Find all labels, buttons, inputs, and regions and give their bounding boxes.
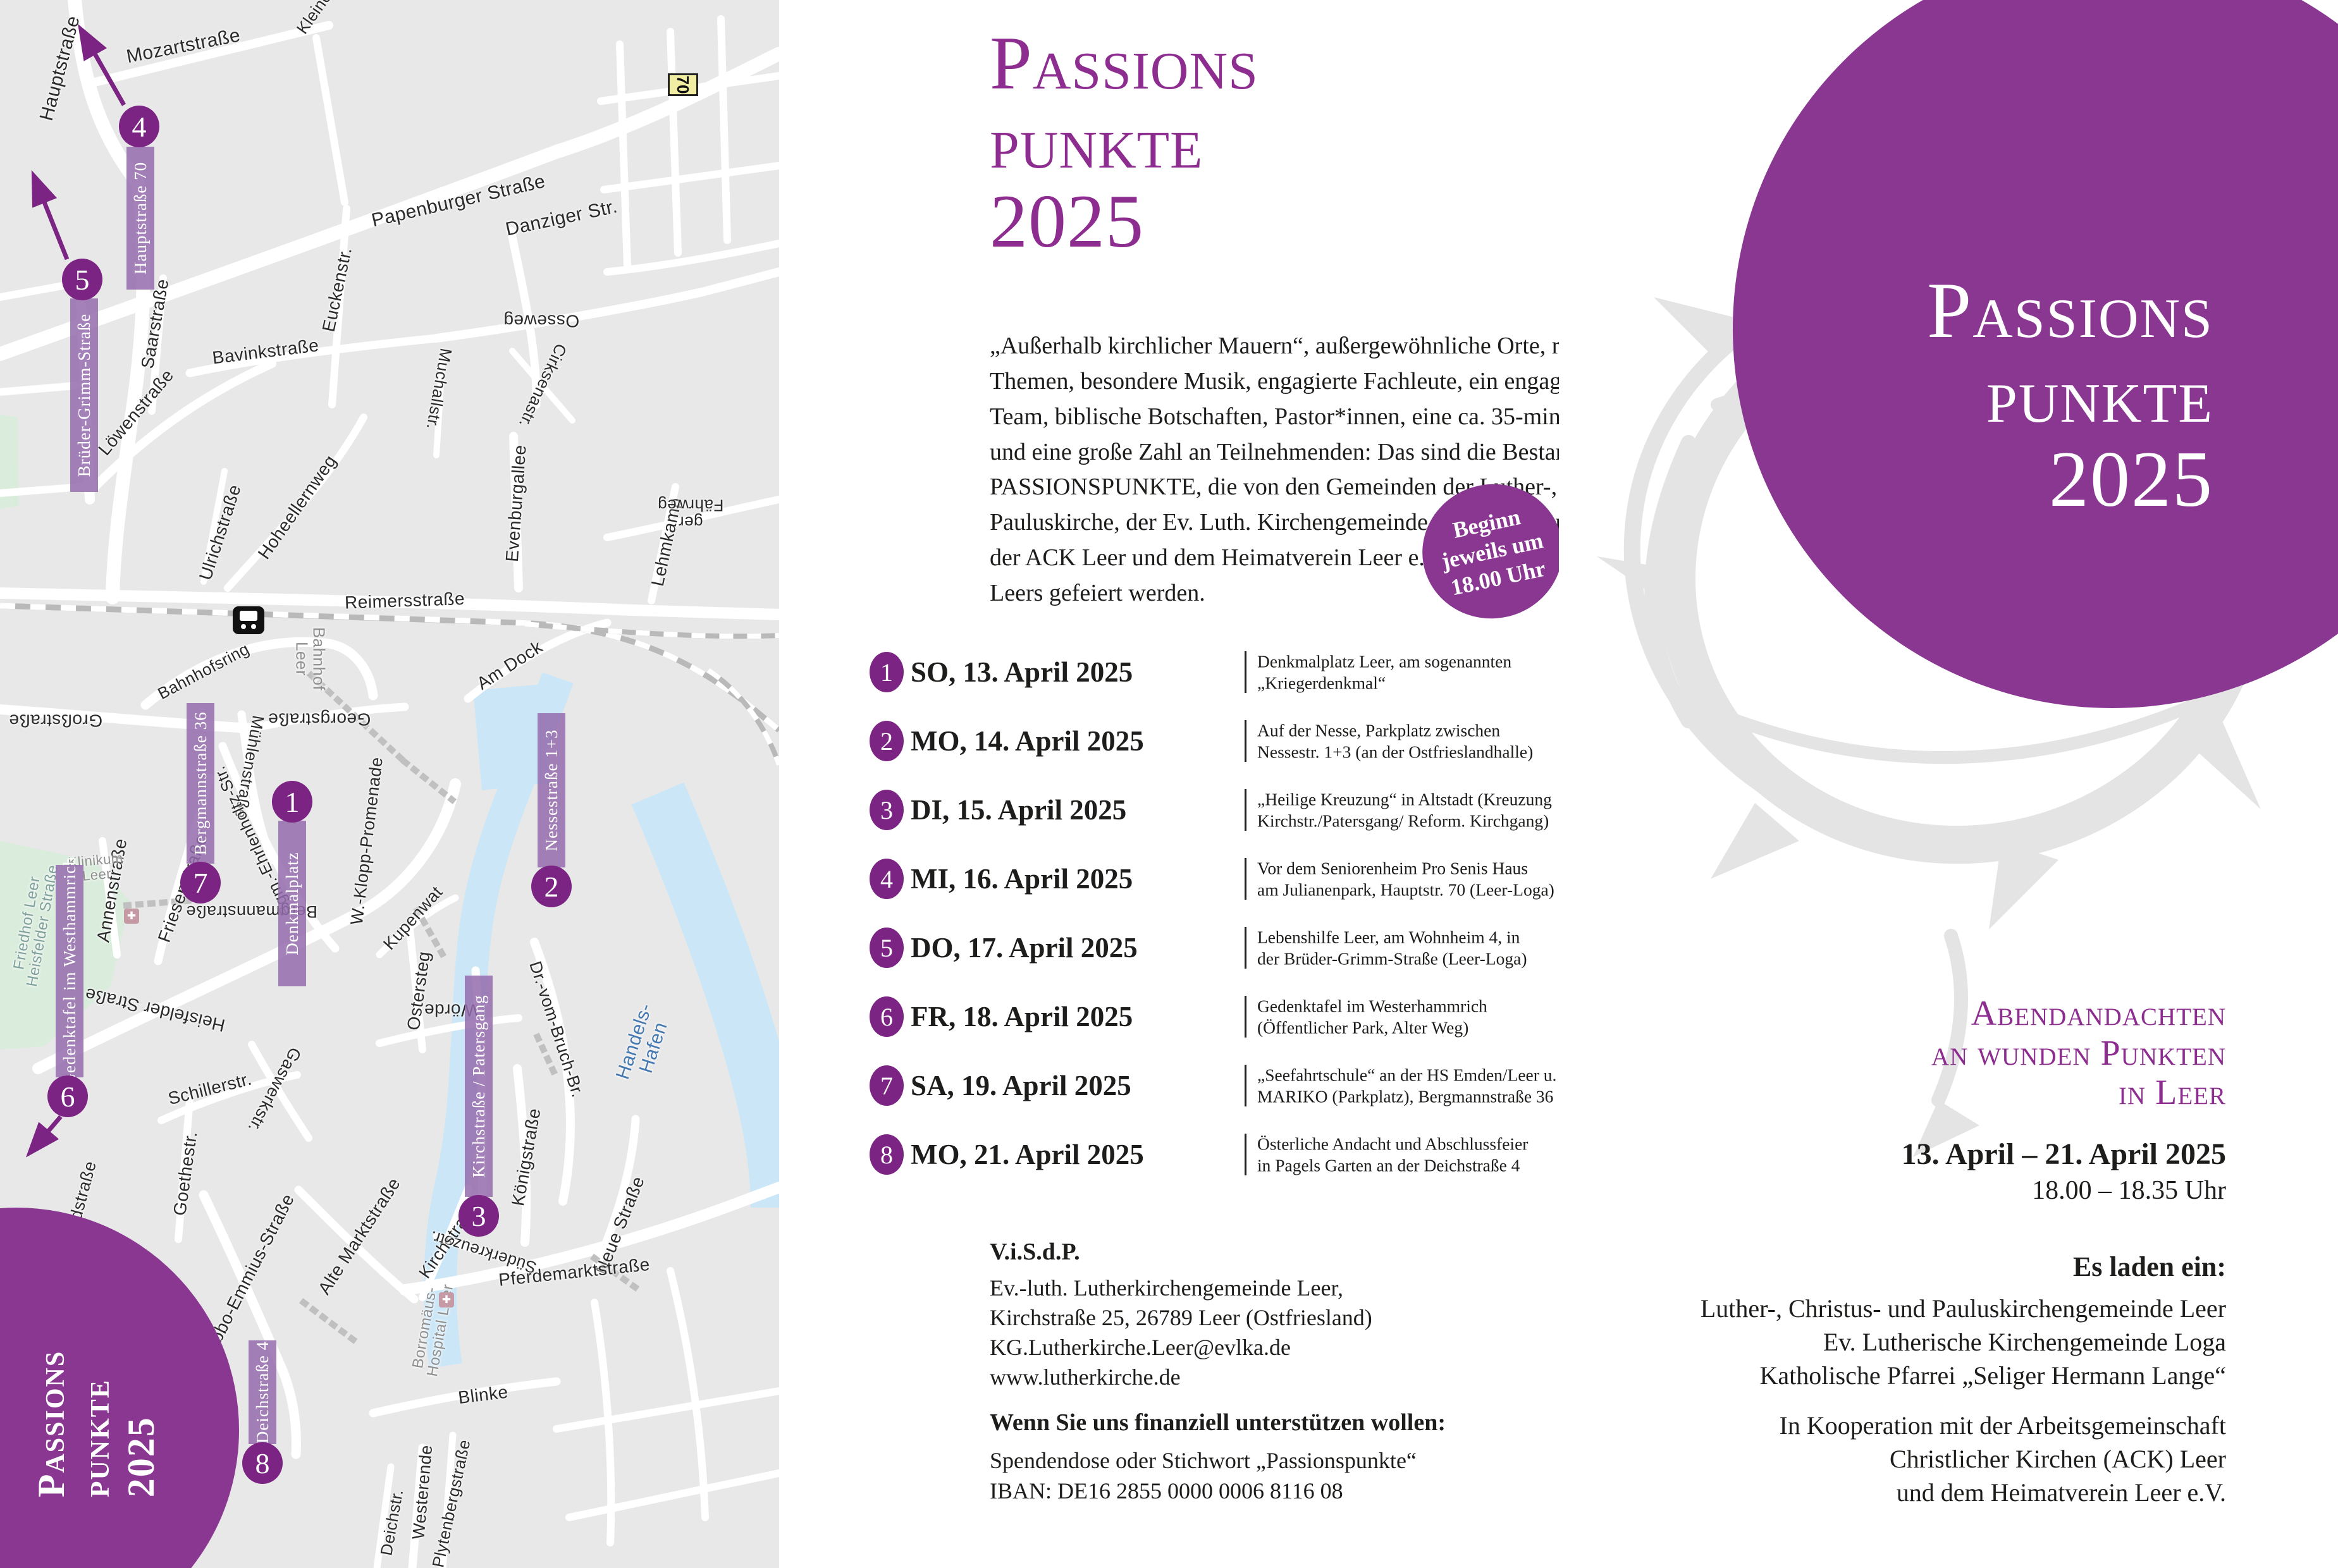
event-location: Gedenktafel im Westerhammrich (Öffentlic… (1257, 995, 1561, 1038)
event-number: 8 (870, 1134, 904, 1175)
map-point-2: 2 (531, 866, 572, 907)
map-point-1: 1 (272, 781, 312, 823)
event-number: 2 (870, 721, 904, 761)
event-number: 7 (870, 1065, 904, 1106)
text-line: In Kooperation mit der Arbeitsgemeinscha… (1701, 1409, 2226, 1442)
text-line: 2025 (118, 1351, 163, 1497)
event-location: „Heilige Kreuzung“ in Altstadt (Kreuzung… (1257, 788, 1561, 831)
organizer-lines: Luther-, Christus- und Pauluskirchengeme… (1701, 1292, 2226, 1392)
cooperation-lines: In Kooperation mit der Arbeitsgemeinscha… (1701, 1409, 2226, 1509)
donation-heading: Wenn Sie uns finanziell unterstützen wol… (990, 1409, 1446, 1436)
train-station-icon (232, 606, 265, 635)
map-point-7: 7 (180, 862, 221, 903)
event-number: 5 (870, 928, 904, 968)
map-point-6: 6 (47, 1075, 88, 1117)
time-range: 18.00 – 18.35 Uhr (1902, 1175, 2226, 1206)
event-divider (1245, 1065, 1246, 1106)
event-location: Österliche Andacht und Abschlussfeier in… (1257, 1133, 1561, 1175)
donation-lines: Spendendose oder Stichwort „Passionspunk… (990, 1445, 1446, 1506)
event-number: 4 (870, 859, 904, 899)
event-date: MI, 16. April 2025 (911, 862, 1133, 895)
event-location: Denkmalplatz Leer, am sogenannten „Krieg… (1257, 651, 1561, 693)
text-line: Spendendose oder Stichwort „Passionspunk… (990, 1445, 1446, 1476)
event-number: 3 (870, 790, 904, 830)
text-line: 2025 (1927, 438, 2213, 522)
text-line: Ev. Lutherische Kirchengemeinde Loga (1701, 1325, 2226, 1359)
location-banner: Bergmannstraße 36 (187, 703, 214, 864)
location-banner: Hauptstraße 70 (126, 147, 154, 290)
event-date: DO, 17. April 2025 (911, 931, 1138, 964)
text-line: IBAN: DE16 2855 0000 0006 8116 08 (990, 1476, 1446, 1506)
map-point-5: 5 (62, 259, 102, 300)
map-point-4: 4 (119, 106, 159, 147)
location-banner: Deichstraße 4 (249, 1340, 276, 1444)
location-banner: Denkmalplatz (278, 821, 306, 986)
text-line: Luther-, Christus- und Pauluskirchengeme… (1701, 1292, 2226, 1325)
corner-title-text: Passionspunkte2025 (29, 1351, 163, 1497)
event-date: SA, 19. April 2025 (911, 1069, 1131, 1102)
text-line: Passions (1927, 269, 2213, 353)
map-panel: HauptstraßeMozartstraßeKleinePapenburger… (0, 0, 779, 1568)
event-number: 1 (870, 652, 904, 692)
event-location: Lebenshilfe Leer, am Wohnheim 4, in der … (1257, 926, 1561, 969)
text-line: punkte (1927, 353, 2213, 438)
text-line: Kirchstraße 25, 26789 Leer (Ostfriesland… (990, 1303, 1372, 1333)
flyer-page: HauptstraßeMozartstraßeKleinePapenburger… (0, 0, 2338, 1568)
event-divider (1245, 927, 1246, 969)
text-line: Christlicher Kirchen (ACK) Leer (1701, 1442, 2226, 1476)
event-divider (1245, 858, 1246, 900)
text-line: punkte (74, 1351, 119, 1497)
text-line: Ev.-luth. Lutherkirchengemeinde Leer, (990, 1273, 1372, 1303)
event-divider (1245, 720, 1246, 762)
map-point-8: 8 (242, 1442, 283, 1484)
text-line: Abendandachten (1931, 994, 2226, 1034)
hospital-cross-icon: ✚ (124, 909, 139, 924)
text-line: www.lutherkirche.de (990, 1363, 1372, 1392)
text-line: und dem Heimatverein Leer e.V. (1701, 1476, 2226, 1509)
imprint-heading: V.i.S.d.P. (990, 1238, 1372, 1266)
organizers-heading: Es laden ein: (1701, 1251, 2226, 1283)
event-date: FR, 18. April 2025 (911, 1000, 1133, 1033)
organizers-block: Es laden ein: Luther-, Christus- und Pau… (1701, 1251, 2226, 1509)
location-banner: Kirchstraße / Patersgang (465, 976, 493, 1197)
event-period: 13. April – 21. April 2025 18.00 – 18.35… (1902, 1137, 2226, 1206)
imprint-lines: Ev.-luth. Lutherkirchengemeinde Leer,Kir… (990, 1273, 1372, 1392)
cover-panel: Passionspunkte2025 Abendandachtenan wund… (1559, 0, 2338, 1568)
donation-block: Wenn Sie uns finanziell unterstützen wol… (990, 1409, 1446, 1506)
text-line: in Leer (1931, 1073, 2226, 1113)
location-banner: Brüder-Grimm-Straße (70, 298, 98, 492)
event-date: MO, 14. April 2025 (911, 725, 1144, 757)
text-line: Passions (29, 1351, 74, 1497)
event-location: „Seefahrtschule“ an der HS Emden/Leer u.… (1257, 1064, 1561, 1106)
event-date: MO, 21. April 2025 (911, 1138, 1144, 1171)
event-divider (1245, 996, 1246, 1038)
location-banner: Nessestraße 1+3 (538, 713, 565, 867)
middle-panel: Passionspunkte2025 „Außerhalb kirchliche… (779, 0, 1559, 1568)
text-line: Katholische Pfarrei „Seliger Hermann Lan… (1701, 1359, 2226, 1392)
event-location: Vor dem Seniorenheim Pro Senis Haus am J… (1257, 857, 1561, 900)
event-divider (1245, 789, 1246, 831)
event-number: 6 (870, 996, 904, 1037)
location-banner: Gedenktafel im Westhammrich (56, 865, 83, 1077)
event-date: SO, 13. April 2025 (911, 656, 1133, 689)
text-line: an wunden Punkten (1931, 1034, 2226, 1074)
event-location: Auf der Nesse, Parkplatz zwischen Nesses… (1257, 720, 1561, 762)
text-line: KG.Lutherkirche.Leer@evlka.de (990, 1333, 1372, 1363)
map-point-3: 3 (458, 1195, 499, 1237)
cover-subtitle: Abendandachtenan wunden Punktenin Leer (1931, 994, 2226, 1113)
event-date: DI, 15. April 2025 (911, 793, 1126, 826)
event-divider (1245, 1134, 1246, 1175)
cover-title: Passionspunkte2025 (1927, 269, 2213, 522)
date-range: 13. April – 21. April 2025 (1902, 1137, 2226, 1172)
route-70-badge: 70 (668, 73, 698, 96)
hospital-cross-icon: ✚ (439, 1292, 454, 1308)
event-divider (1245, 651, 1246, 693)
imprint-block: V.i.S.d.P. Ev.-luth. Lutherkirchengemein… (990, 1238, 1372, 1392)
